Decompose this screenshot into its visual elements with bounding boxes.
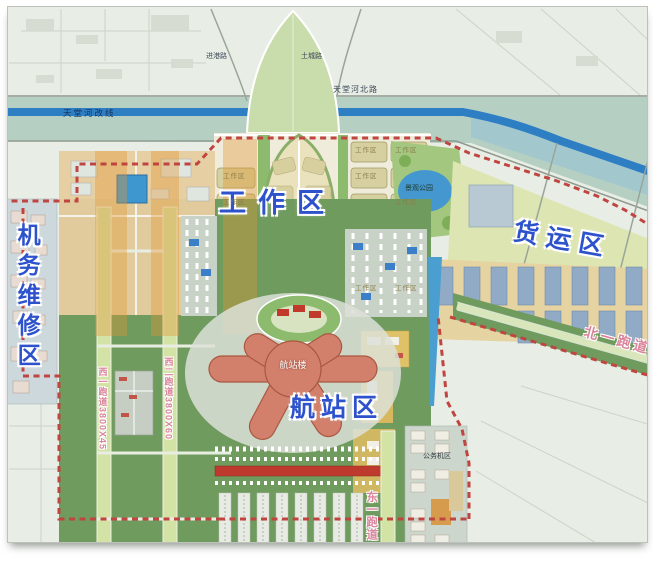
work-block-label: 工作区 <box>223 174 246 181</box>
river-label: 天堂河改线 <box>63 109 116 118</box>
landscape-park-label: 景观公园 <box>405 185 433 192</box>
map-canvas: 工作区 货运区 航站区 机务维修区 航站楼 西一跑道3800X45 西二跑道38… <box>7 6 648 543</box>
screenshot-root: { "labels": { "work_zone": "工作区", "cargo… <box>0 0 653 562</box>
business-jet-area <box>405 426 467 543</box>
work-block-label: 工作区 <box>355 174 378 181</box>
business-jet-area-label: 公务机区 <box>423 453 451 460</box>
work-block-label: 工作区 <box>395 148 418 155</box>
work-block-label: 工作区 <box>395 286 418 293</box>
work-block-label: 工作区 <box>395 200 418 207</box>
terminal-complex <box>185 293 401 453</box>
airport-planning-map: 工作区 货运区 航站区 机务维修区 航站楼 西一跑道3800X45 西二跑道38… <box>7 6 648 543</box>
runway-east1-label: 东一跑道 <box>365 491 377 543</box>
terminal-building-label: 航站楼 <box>263 361 323 370</box>
jingang-road-label: 进港路 <box>206 53 227 60</box>
work-block-label: 工作区 <box>355 286 378 293</box>
maintenance-zone-label: 机务维修区 <box>15 223 39 393</box>
work-block-label: 工作区 <box>355 148 378 155</box>
terminal-zone-label: 航站区 <box>290 395 383 421</box>
runway-west1-label: 西一跑道3800X45 <box>97 367 106 512</box>
runway-west2-label: 西二跑道3800X60 <box>163 357 172 502</box>
tiantang-north-road-label: 天堂河北路 <box>333 86 378 94</box>
tucheng-road-label: 土城路 <box>301 53 322 60</box>
work-block-label: 工作区 <box>223 200 246 207</box>
